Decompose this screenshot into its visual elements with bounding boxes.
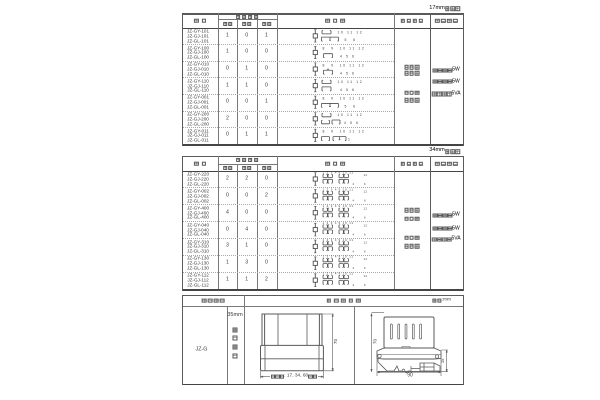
svg-text:1 2 3 4: 1 2 3 4 — [323, 221, 338, 225]
svg-text:12: 12 — [364, 274, 368, 278]
svg-text:9 10 11: 9 10 11 — [339, 187, 354, 191]
svg-text:9 10 11: 9 10 11 — [339, 255, 354, 259]
svg-text:4: 4 — [353, 199, 355, 203]
svg-text:6: 6 — [364, 266, 366, 270]
svg-text:6: 6 — [364, 249, 366, 253]
svg-text:1 2 3 4: 1 2 3 4 — [323, 272, 338, 276]
svg-text:4: 4 — [353, 266, 355, 270]
svg-text:70: 70 — [333, 339, 338, 345]
svg-text:9 10 11: 9 10 11 — [339, 221, 354, 225]
svg-text:4: 4 — [353, 232, 355, 236]
svg-text:12: 12 — [364, 240, 368, 244]
svg-text:12: 12 — [364, 190, 368, 194]
svg-text:9 10 11: 9 10 11 — [339, 170, 354, 174]
svg-text:4: 4 — [353, 283, 355, 287]
svg-text:6: 6 — [364, 232, 366, 236]
svg-text:6: 6 — [364, 199, 366, 203]
svg-text:9 10 11: 9 10 11 — [339, 238, 354, 242]
svg-text:9 10 11: 9 10 11 — [339, 272, 354, 276]
svg-text:4: 4 — [353, 216, 355, 220]
svg-text:12: 12 — [364, 173, 368, 177]
svg-text:12: 12 — [364, 207, 368, 211]
svg-text:1 2 3 4: 1 2 3 4 — [323, 187, 338, 191]
svg-text:4: 4 — [353, 249, 355, 253]
svg-text:1 2 3 4: 1 2 3 4 — [323, 238, 338, 242]
svg-text:12: 12 — [364, 257, 368, 261]
svg-text:12: 12 — [364, 223, 368, 227]
svg-text:70: 70 — [373, 339, 378, 345]
svg-text:1 2 3 4: 1 2 3 4 — [323, 255, 338, 259]
svg-text:6: 6 — [364, 182, 366, 186]
svg-text:4: 4 — [353, 182, 355, 186]
svg-text:6: 6 — [364, 216, 366, 220]
svg-text:6: 6 — [364, 283, 366, 287]
svg-text:1 2 3 4: 1 2 3 4 — [323, 170, 338, 174]
svg-text:9 10 11: 9 10 11 — [339, 204, 354, 208]
svg-text:1 2 3 4: 1 2 3 4 — [323, 204, 338, 208]
